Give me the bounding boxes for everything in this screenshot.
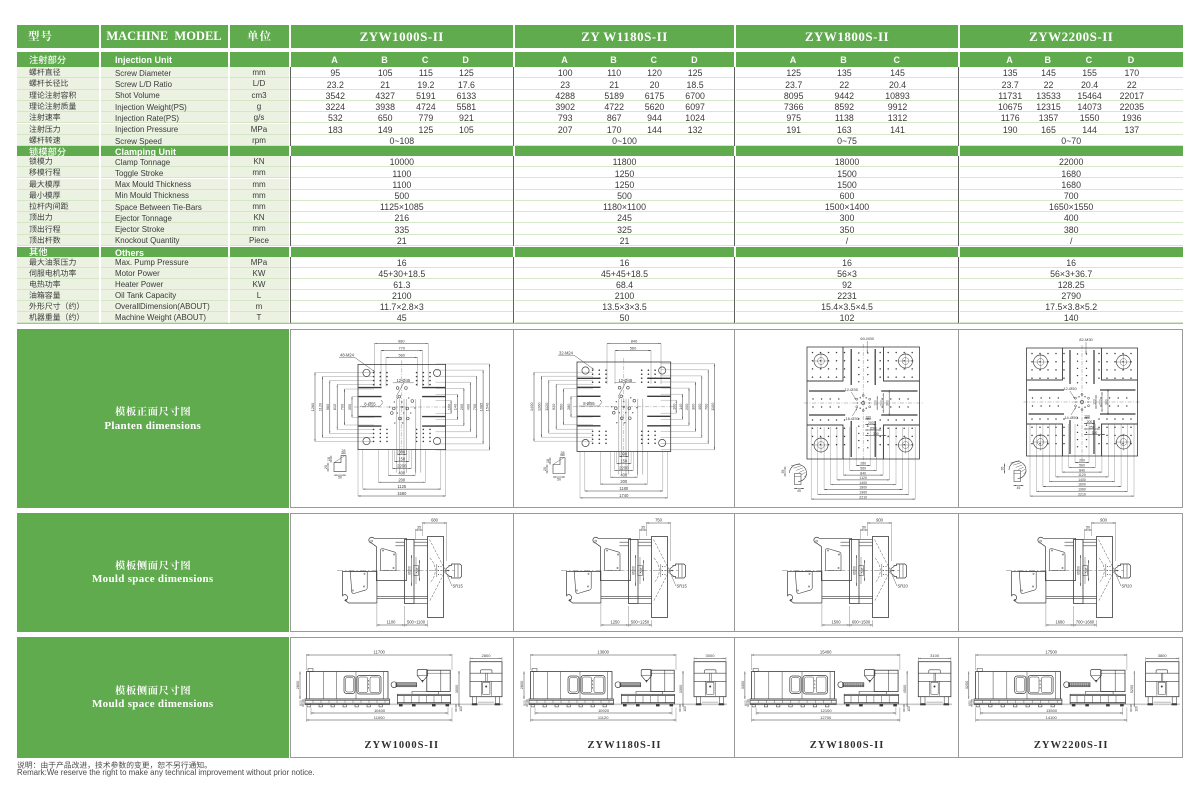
svg-text:1260: 1260 — [536, 402, 541, 411]
svg-text:600~1500: 600~1500 — [852, 619, 871, 624]
svg-text:13600: 13600 — [597, 649, 609, 654]
svg-text:1540: 1540 — [484, 402, 489, 411]
svg-text:18: 18 — [327, 457, 331, 461]
svg-text:28: 28 — [561, 451, 565, 455]
svg-text:Ø200: Ø200 — [1077, 566, 1081, 575]
svg-text:8-Ø55: 8-Ø55 — [364, 401, 376, 406]
svg-text:100: 100 — [1092, 399, 1096, 405]
svg-text:11700: 11700 — [373, 649, 385, 654]
svg-text:150: 150 — [620, 459, 628, 464]
svg-text:100: 100 — [1084, 414, 1090, 418]
svg-text:100: 100 — [1134, 706, 1138, 712]
svg-text:920: 920 — [551, 403, 556, 410]
svg-text:700: 700 — [339, 403, 344, 410]
svg-text:200: 200 — [459, 403, 464, 410]
svg-text:20: 20 — [324, 465, 328, 469]
svg-text:1600: 1600 — [1078, 483, 1086, 487]
svg-text:1120: 1120 — [317, 402, 322, 411]
svg-text:400: 400 — [697, 403, 702, 410]
svg-text:250: 250 — [870, 426, 876, 430]
svg-text:3000: 3000 — [706, 653, 716, 658]
svg-text:3200: 3200 — [965, 680, 969, 688]
svg-text:900: 900 — [876, 517, 884, 522]
svg-text:516: 516 — [861, 567, 865, 573]
svg-text:SR15: SR15 — [452, 583, 463, 588]
svg-text:300: 300 — [1092, 431, 1098, 435]
svg-text:980: 980 — [398, 338, 405, 343]
svg-text:14-Ø50: 14-Ø50 — [1064, 415, 1078, 420]
svg-text:560: 560 — [860, 467, 866, 471]
svg-text:1100: 1100 — [710, 402, 715, 411]
svg-text:50: 50 — [557, 478, 561, 482]
svg-text:200: 200 — [1087, 420, 1093, 424]
svg-text:300: 300 — [398, 450, 406, 455]
svg-text:100: 100 — [865, 415, 871, 419]
svg-text:2800: 2800 — [520, 680, 524, 688]
svg-text:280: 280 — [566, 403, 571, 410]
svg-text:5200: 5200 — [1130, 684, 1134, 692]
svg-text:200: 200 — [684, 403, 689, 410]
svg-text:100: 100 — [874, 400, 878, 406]
svg-text:200: 200 — [868, 421, 874, 425]
svg-text:840: 840 — [631, 338, 638, 343]
svg-text:500~1250: 500~1250 — [631, 619, 650, 624]
svg-text:650: 650 — [968, 700, 972, 706]
svg-text:1400: 1400 — [529, 402, 534, 411]
svg-text:280: 280 — [860, 462, 866, 466]
svg-text:32-M24: 32-M24 — [559, 350, 574, 355]
svg-text:100: 100 — [671, 403, 676, 410]
svg-text:3100: 3100 — [930, 653, 940, 658]
svg-text:1800: 1800 — [859, 486, 867, 490]
svg-text:600: 600 — [744, 700, 748, 706]
svg-text:400: 400 — [398, 470, 406, 475]
svg-text:1740: 1740 — [619, 493, 629, 498]
svg-text:560: 560 — [559, 403, 564, 410]
svg-text:20: 20 — [543, 467, 547, 471]
svg-text:900: 900 — [1100, 517, 1108, 522]
svg-text:200: 200 — [880, 400, 884, 406]
svg-text:980: 980 — [324, 403, 329, 410]
svg-text:560: 560 — [630, 346, 637, 351]
svg-text:12-Ø48: 12-Ø48 — [618, 378, 632, 383]
svg-text:1085: 1085 — [478, 403, 483, 412]
svg-text:Ø200: Ø200 — [407, 566, 411, 575]
svg-text:500: 500 — [523, 700, 527, 706]
svg-text:1960: 1960 — [1078, 488, 1086, 492]
svg-text:2210: 2210 — [1078, 492, 1086, 496]
svg-text:45: 45 — [797, 489, 801, 493]
svg-text:2200: 2200 — [619, 465, 629, 470]
svg-text:600: 600 — [299, 700, 303, 706]
svg-text:300: 300 — [886, 400, 890, 406]
svg-text:SR15: SR15 — [677, 583, 688, 588]
svg-text:1500: 1500 — [831, 619, 841, 624]
svg-text:12700: 12700 — [820, 714, 832, 719]
svg-text:700: 700 — [471, 403, 476, 410]
svg-text:400: 400 — [620, 472, 628, 477]
svg-text:840: 840 — [1079, 468, 1085, 472]
svg-text:2210: 2210 — [859, 495, 867, 499]
svg-text:10400: 10400 — [373, 707, 385, 712]
svg-text:700~1680: 700~1680 — [1076, 619, 1095, 624]
svg-text:16-Ø30: 16-Ø30 — [846, 416, 860, 421]
svg-text:2800: 2800 — [296, 680, 300, 688]
svg-text:95: 95 — [781, 470, 785, 474]
svg-text:12-Ø45: 12-Ø45 — [396, 378, 410, 383]
svg-text:3000: 3000 — [455, 684, 459, 692]
svg-text:1400: 1400 — [1078, 478, 1086, 482]
svg-text:4500: 4500 — [903, 684, 907, 692]
svg-text:516: 516 — [415, 567, 419, 573]
svg-text:300: 300 — [873, 432, 879, 436]
svg-text:810: 810 — [332, 403, 337, 410]
svg-text:770: 770 — [398, 346, 405, 351]
svg-text:1180: 1180 — [619, 486, 629, 491]
svg-text:60-M30: 60-M30 — [860, 336, 874, 341]
svg-text:300: 300 — [691, 403, 696, 410]
svg-text:516: 516 — [640, 567, 644, 573]
svg-text:14100: 14100 — [1046, 714, 1058, 719]
svg-text:100: 100 — [459, 706, 463, 712]
svg-text:15400: 15400 — [820, 649, 832, 654]
svg-text:560: 560 — [398, 352, 405, 357]
svg-text:SR20: SR20 — [898, 583, 909, 588]
svg-text:50: 50 — [1086, 525, 1090, 529]
svg-text:1125: 1125 — [397, 484, 407, 489]
svg-text:700: 700 — [703, 403, 708, 410]
svg-text:Ø200: Ø200 — [632, 566, 636, 575]
svg-text:500~1100: 500~1100 — [406, 619, 425, 624]
svg-text:12-Ø35: 12-Ø35 — [845, 387, 859, 392]
svg-text:140: 140 — [678, 403, 683, 410]
svg-text:400: 400 — [465, 403, 470, 410]
svg-text:SR20: SR20 — [1122, 583, 1133, 588]
svg-text:300: 300 — [1104, 399, 1108, 405]
svg-text:250: 250 — [1089, 425, 1095, 429]
svg-text:Ø200: Ø200 — [853, 566, 857, 575]
svg-text:200: 200 — [398, 477, 406, 482]
svg-text:100: 100 — [683, 706, 687, 712]
svg-text:82-M30: 82-M30 — [1079, 337, 1093, 342]
svg-text:95: 95 — [1001, 467, 1005, 471]
svg-text:3300: 3300 — [679, 684, 683, 692]
svg-text:17500: 17500 — [1045, 649, 1057, 654]
svg-text:3300: 3300 — [741, 680, 745, 688]
svg-text:1580: 1580 — [397, 491, 407, 496]
svg-text:45: 45 — [1017, 486, 1021, 490]
svg-text:1120: 1120 — [544, 402, 549, 411]
svg-text:1250: 1250 — [610, 619, 620, 624]
svg-text:516: 516 — [1085, 567, 1089, 573]
svg-text:11120: 11120 — [598, 714, 609, 719]
svg-text:13500: 13500 — [1046, 707, 1058, 712]
svg-text:12-Ø50: 12-Ø50 — [1063, 386, 1077, 391]
svg-text:50: 50 — [862, 525, 866, 529]
svg-text:18: 18 — [546, 459, 550, 463]
svg-text:200: 200 — [1098, 399, 1102, 405]
svg-text:680: 680 — [431, 517, 439, 522]
svg-text:35: 35 — [641, 525, 645, 529]
svg-text:1960: 1960 — [859, 491, 867, 495]
svg-text:12100: 12100 — [820, 707, 832, 712]
svg-text:1100: 1100 — [386, 619, 396, 624]
svg-text:2200: 2200 — [397, 464, 407, 469]
svg-text:1400: 1400 — [859, 481, 867, 485]
svg-text:50: 50 — [338, 476, 342, 480]
svg-text:8-Ø55: 8-Ø55 — [583, 401, 595, 406]
svg-text:1680: 1680 — [1055, 619, 1065, 624]
svg-text:100: 100 — [446, 403, 451, 410]
svg-text:2800: 2800 — [481, 653, 491, 658]
svg-text:11000: 11000 — [373, 714, 385, 719]
svg-text:280: 280 — [1079, 459, 1085, 463]
svg-text:300: 300 — [620, 452, 628, 457]
svg-text:28: 28 — [341, 449, 345, 453]
svg-text:35: 35 — [416, 525, 420, 529]
svg-text:1120: 1120 — [859, 476, 867, 480]
svg-text:48-M24: 48-M24 — [340, 353, 355, 358]
svg-text:150: 150 — [398, 457, 406, 462]
svg-text:1120: 1120 — [1078, 473, 1086, 477]
svg-text:100: 100 — [907, 706, 911, 712]
svg-text:200: 200 — [620, 479, 628, 484]
svg-text:1260: 1260 — [310, 402, 315, 411]
svg-text:140: 140 — [452, 403, 457, 410]
svg-text:560: 560 — [1079, 464, 1085, 468]
svg-text:750: 750 — [655, 517, 663, 522]
svg-text:10920: 10920 — [598, 707, 610, 712]
svg-text:350: 350 — [347, 403, 352, 410]
svg-text:3800: 3800 — [1158, 653, 1168, 658]
svg-text:840: 840 — [860, 471, 866, 475]
